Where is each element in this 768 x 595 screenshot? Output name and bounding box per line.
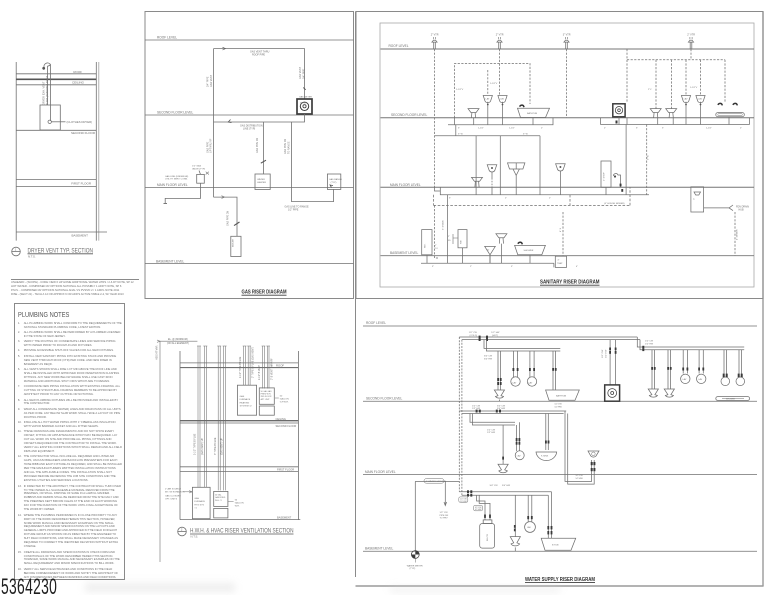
svg-text:W.H.: W.H. — [425, 243, 427, 248]
svg-text:(TYP): (TYP) — [331, 182, 337, 184]
svg-text:APT. UNIT: APT. UNIT — [261, 398, 271, 401]
svg-text:MAIN FLOOR LEVEL: MAIN FLOOR LEVEL — [157, 183, 188, 187]
svg-text:GALLON: GALLON — [280, 397, 289, 400]
svg-text:1/2 HW: 1/2 HW — [554, 406, 562, 408]
svg-text:2": 2" — [435, 245, 437, 247]
svg-text:1-1/2": 1-1/2" — [509, 128, 515, 130]
svg-text:4" S: 4" S — [560, 227, 562, 232]
svg-text:2": 2" — [604, 127, 606, 129]
svg-text:BASEMENT: BASEMENT — [71, 234, 88, 238]
svg-text:GAS PIPE DN: GAS PIPE DN — [226, 210, 229, 226]
svg-text:1/2" GAS: 1/2" GAS — [192, 165, 202, 168]
svg-text:2": 2" — [549, 198, 551, 200]
svg-text:3": 3" — [449, 198, 451, 200]
svg-text:LAV: LAV — [517, 455, 521, 458]
svg-text:W.H.: W.H. — [235, 505, 240, 507]
svg-text:GAS PIPE DN: GAS PIPE DN — [256, 137, 259, 153]
svg-text:LAV: LAV — [698, 378, 702, 381]
svg-text:(GAS VENT) UP: (GAS VENT) UP — [220, 438, 223, 455]
svg-text:WATER METER: WATER METER — [407, 564, 423, 567]
svg-text:LAV: LAV — [512, 382, 517, 385]
svg-text:1-1/2"V: 1-1/2"V — [456, 89, 464, 91]
svg-text:#1: #1 — [194, 508, 197, 510]
svg-text:2": 2" — [448, 236, 450, 238]
svg-text:INT. W/ EXHAUSTS: INT. W/ EXHAUSTS — [165, 491, 185, 494]
svg-text:SECOND FLOOR LEVEL: SECOND FLOOR LEVEL — [366, 397, 403, 401]
svg-text:K SINK: K SINK — [541, 456, 549, 458]
svg-text:FURNACE: FURNACE — [240, 398, 251, 401]
svg-text:1/2" CW: 1/2" CW — [487, 429, 496, 431]
svg-text:GAS FIRED: GAS FIRED — [215, 496, 226, 499]
svg-text:(4" HOUSE SEWER): (4" HOUSE SEWER) — [604, 203, 625, 205]
svg-text:W.H. #1: W.H. #1 — [215, 500, 222, 502]
svg-text:SECOND FLOOR LEVEL: SECOND FLOOR LEVEL — [391, 113, 428, 117]
svg-text:LAV: LAV — [684, 98, 688, 101]
svg-text:3/4" CW: 3/4" CW — [490, 485, 499, 487]
svg-text:BATHTUB: BATHTUB — [556, 394, 567, 397]
svg-text:2-1/2" TYPE B FLUE: 2-1/2" TYPE B FLUE — [240, 356, 242, 378]
svg-text:SHOWER: SHOWER — [524, 250, 534, 252]
svg-text:UP THRU RF: UP THRU RF — [210, 138, 213, 153]
svg-text:50 GAL: 50 GAL — [215, 494, 221, 497]
svg-text:1/2" PIPE: 1/2" PIPE — [288, 209, 299, 212]
svg-text:BOILER: BOILER — [232, 239, 234, 247]
svg-text:(ON ALL ELEMENT): (ON ALL ELEMENT) — [167, 342, 189, 345]
svg-text:GALLON: GALLON — [235, 501, 244, 504]
svg-text:GAS: GAS — [194, 497, 199, 500]
svg-text:(CLOTHES DRYER): (CLOTHES DRYER) — [67, 120, 93, 124]
svg-text:METER: METER — [300, 102, 307, 104]
svg-text:3" W: 3" W — [648, 154, 650, 160]
svg-text:EL. @ (MINIMUM): EL. @ (MINIMUM) — [168, 338, 188, 341]
svg-text:1/2" CW: 1/2" CW — [645, 341, 654, 343]
svg-text:2"V: 2"V — [648, 89, 652, 91]
svg-text:1/2" CW: 1/2" CW — [602, 349, 604, 358]
svg-text:3" TYPE B FLUE: 3" TYPE B FLUE — [215, 437, 217, 455]
svg-text:2": 2" — [541, 128, 543, 130]
svg-text:3/4" CW: 3/4" CW — [497, 405, 506, 407]
svg-text:LAV: LAV — [500, 98, 504, 101]
svg-text:UTILITY SERV. CONN.: UTILITY SERV. CONN. — [165, 179, 188, 181]
svg-text:FIRST FLOOR: FIRST FLOOR — [71, 182, 92, 186]
svg-text:1/2" HW: 1/2" HW — [487, 432, 496, 434]
svg-text:2" VTR: 2" VTR — [687, 34, 695, 37]
svg-text:(HOT): (HOT) — [492, 335, 498, 337]
svg-text:SECOND FLOOR: SECOND FLOOR — [71, 131, 96, 135]
svg-text:ROOF LEVEL: ROOF LEVEL — [366, 321, 386, 325]
svg-text:4": 4" — [576, 266, 578, 268]
svg-text:50 GAL GAS: 50 GAL GAS — [261, 390, 273, 393]
svg-text:2" STDP: 2" STDP — [604, 172, 606, 181]
svg-text:GAS: GAS — [240, 395, 245, 398]
svg-text:(GAS VENT) UP: (GAS VENT) UP — [201, 438, 204, 455]
svg-text:OPT. UNITS: OPT. UNITS — [165, 498, 178, 500]
svg-text:MAIN FLOOR LEVEL: MAIN FLOOR LEVEL — [365, 470, 396, 474]
svg-text:3": 3" — [636, 127, 638, 129]
svg-text:B TUB: B TUB — [552, 545, 559, 547]
svg-text:DRYER EXH. VENT: DRYER EXH. VENT — [42, 81, 46, 105]
svg-text:HEATING: HEATING — [240, 401, 250, 404]
svg-text:2" VTR: 2" VTR — [431, 34, 439, 37]
svg-text:1-1/2": 1-1/2" — [706, 127, 712, 129]
svg-text:4" DIA (SMOOTH) DUCT: 4" DIA (SMOOTH) DUCT — [45, 76, 49, 105]
svg-text:2": 2" — [505, 198, 507, 200]
svg-text:CEILING: CEILING — [276, 417, 286, 421]
svg-text:4" SEWER: 4" SEWER — [737, 229, 739, 240]
svg-text:WATER: WATER — [257, 178, 265, 181]
svg-text:3/4" HW: 3/4" HW — [497, 408, 506, 410]
svg-text:3" B VENT THRU RF: 3" B VENT THRU RF — [272, 358, 274, 380]
svg-text:N.T.S.: N.T.S. — [28, 255, 36, 259]
svg-text:3": 3" — [662, 127, 664, 129]
svg-text:STK: STK — [461, 239, 463, 244]
svg-text:1/2 HW: 1/2 HW — [575, 478, 583, 480]
svg-text:BASEMENT LEVEL: BASEMENT LEVEL — [156, 259, 185, 263]
svg-text:1/2 HW: 1/2 HW — [460, 501, 467, 503]
svg-text:ROOF LEVEL: ROOF LEVEL — [389, 44, 409, 48]
svg-text:4": 4" — [558, 260, 560, 262]
svg-text:CO: CO — [435, 248, 438, 250]
svg-text:BASEMENT LEVEL: BASEMENT LEVEL — [365, 547, 394, 551]
svg-text:GAS VENT: GAS VENT — [210, 74, 213, 87]
svg-text:1: 1 — [15, 248, 17, 252]
svg-text:2: 2 — [181, 528, 183, 532]
svg-text:G.F.W.H.: G.F.W.H. — [280, 401, 289, 403]
svg-text:ROOF: ROOF — [73, 70, 82, 74]
svg-text:1" WATER SERVICE: 1" WATER SERVICE — [426, 480, 447, 483]
svg-text:1-1/2"V: 1-1/2"V — [690, 87, 698, 89]
svg-text:W.HTR: W.HTR — [487, 534, 489, 541]
svg-text:4": 4" — [694, 198, 696, 200]
svg-text:3/4" HW: 3/4" HW — [502, 485, 511, 487]
svg-text:1/2 HW: 1/2 HW — [475, 509, 482, 511]
svg-text:50: 50 — [235, 499, 238, 501]
svg-text:3" TYPE B FLUE (GAS VENT): 3" TYPE B FLUE (GAS VENT) — [252, 347, 255, 378]
svg-text:3": 3" — [511, 266, 513, 268]
svg-text:FURNACE: FURNACE — [194, 500, 205, 503]
svg-text:SECOND FLOOR: SECOND FLOOR — [276, 424, 297, 428]
svg-text:50: 50 — [280, 395, 283, 397]
svg-text:3" W: 3" W — [458, 134, 464, 136]
svg-text:1/2" HW: 1/2" HW — [491, 332, 500, 334]
svg-text:HUB: HUB — [739, 209, 744, 212]
svg-text:PIPE DN: PIPE DN — [440, 515, 449, 517]
svg-text:TO PRV: TO PRV — [440, 518, 449, 520]
svg-text:3/4" CW: 3/4" CW — [484, 356, 493, 358]
svg-text:1/2" HW: 1/2" HW — [605, 349, 607, 358]
svg-text:BASEMENT: BASEMENT — [277, 515, 292, 519]
svg-text:TRAP: TRAP — [557, 262, 563, 265]
svg-text:1/2 CW: 1/2 CW — [554, 404, 562, 406]
svg-text:2": 2" — [470, 266, 472, 268]
svg-text:FIRST FLOOR: FIRST FLOOR — [277, 467, 294, 471]
svg-text:1-1/2"V: 1-1/2"V — [490, 83, 498, 85]
svg-text:BATHTUB: BATHTUB — [527, 112, 538, 115]
svg-text:SANITARY RISER DIAGRAM: SANITARY RISER DIAGRAM — [540, 280, 600, 286]
svg-text:FD: FD — [448, 240, 451, 242]
svg-text:3/4" HW: 3/4" HW — [484, 358, 493, 360]
svg-text:GAS METER: GAS METER — [299, 96, 312, 99]
svg-text:LAV: LAV — [486, 98, 490, 101]
svg-text:HEATER: HEATER — [257, 181, 266, 184]
svg-text:N.T.S.: N.T.S. — [191, 535, 199, 539]
svg-text:WATER SUPPLY RISER DIAGRAM: WATER SUPPLY RISER DIAGRAM — [525, 577, 595, 583]
svg-text:VALVE (TYP): VALVE (TYP) — [192, 167, 205, 170]
svg-text:1/2" CW: 1/2" CW — [469, 332, 478, 334]
svg-text:GAS CLOSURE: GAS CLOSURE — [165, 494, 181, 497]
svg-text:FD: FD — [487, 250, 490, 252]
svg-text:ROOF: ROOF — [276, 364, 284, 368]
svg-text:2": 2" — [740, 127, 742, 129]
svg-text:3": 3" — [458, 128, 460, 130]
svg-text:3": 3" — [432, 266, 434, 268]
svg-text:1-1/2": 1-1/2" — [478, 128, 484, 130]
svg-text:GAS RANGE: GAS RANGE — [329, 178, 343, 181]
svg-text:(TYP): (TYP) — [410, 568, 416, 570]
svg-text:2-1/2" B VENT: 2-1/2" B VENT — [259, 364, 261, 380]
svg-text:HTG SYS: HTG SYS — [194, 504, 204, 506]
svg-text:1/2" CW: 1/2" CW — [472, 405, 481, 407]
svg-text:2-1/2" TYPE B FLUE: 2-1/2" TYPE B FLUE — [195, 433, 197, 455]
svg-text:1/2" HW: 1/2" HW — [645, 343, 654, 345]
svg-text:2" VTR: 2" VTR — [496, 34, 504, 37]
svg-text:SHOWER: SHOWER — [726, 399, 736, 401]
svg-text:ROOF PIPE: ROOF PIPE — [252, 53, 265, 56]
svg-text:GAS LINE (UNDERGR): GAS LINE (UNDERGR) — [165, 175, 188, 178]
svg-text:LINE (TYP): LINE (TYP) — [243, 127, 255, 130]
svg-text:SECOND FLOOR LEVEL: SECOND FLOOR LEVEL — [157, 111, 194, 115]
svg-text:3" W: 3" W — [523, 134, 529, 136]
svg-text:TO RANGE: TO RANGE — [287, 141, 290, 154]
svg-text:3" VTR: 3" VTR — [563, 34, 571, 37]
svg-text:LAV: LAV — [528, 382, 533, 385]
svg-text:LAV: LAV — [698, 98, 702, 101]
svg-text:1/2" CW: 1/2" CW — [440, 512, 449, 514]
svg-text:CEILING: CEILING — [72, 81, 85, 85]
svg-text:LAV: LAV — [527, 526, 531, 529]
svg-text:3/4" PIPE: 3/4" PIPE — [302, 68, 305, 79]
svg-text:HEIGHT VAR.: HEIGHT VAR. — [156, 345, 159, 360]
svg-text:3" STACK: 3" STACK — [442, 220, 445, 230]
svg-text:SYSTEM #2: SYSTEM #2 — [240, 406, 253, 408]
svg-text:MAIN FLOOR LEVEL: MAIN FLOOR LEVEL — [390, 183, 421, 187]
svg-text:2" AIR SOURCE: 2" AIR SOURCE — [165, 488, 182, 491]
svg-text:GAS RISER DIAGRAM: GAS RISER DIAGRAM — [242, 290, 287, 296]
svg-text:LAV: LAV — [683, 378, 687, 381]
svg-text:1/2 CW: 1/2 CW — [575, 475, 583, 477]
svg-text:ROOF LEVEL: ROOF LEVEL — [157, 36, 177, 40]
svg-text:BASEMENT LEVEL: BASEMENT LEVEL — [390, 251, 419, 255]
svg-text:(COLD): (COLD) — [470, 335, 478, 337]
